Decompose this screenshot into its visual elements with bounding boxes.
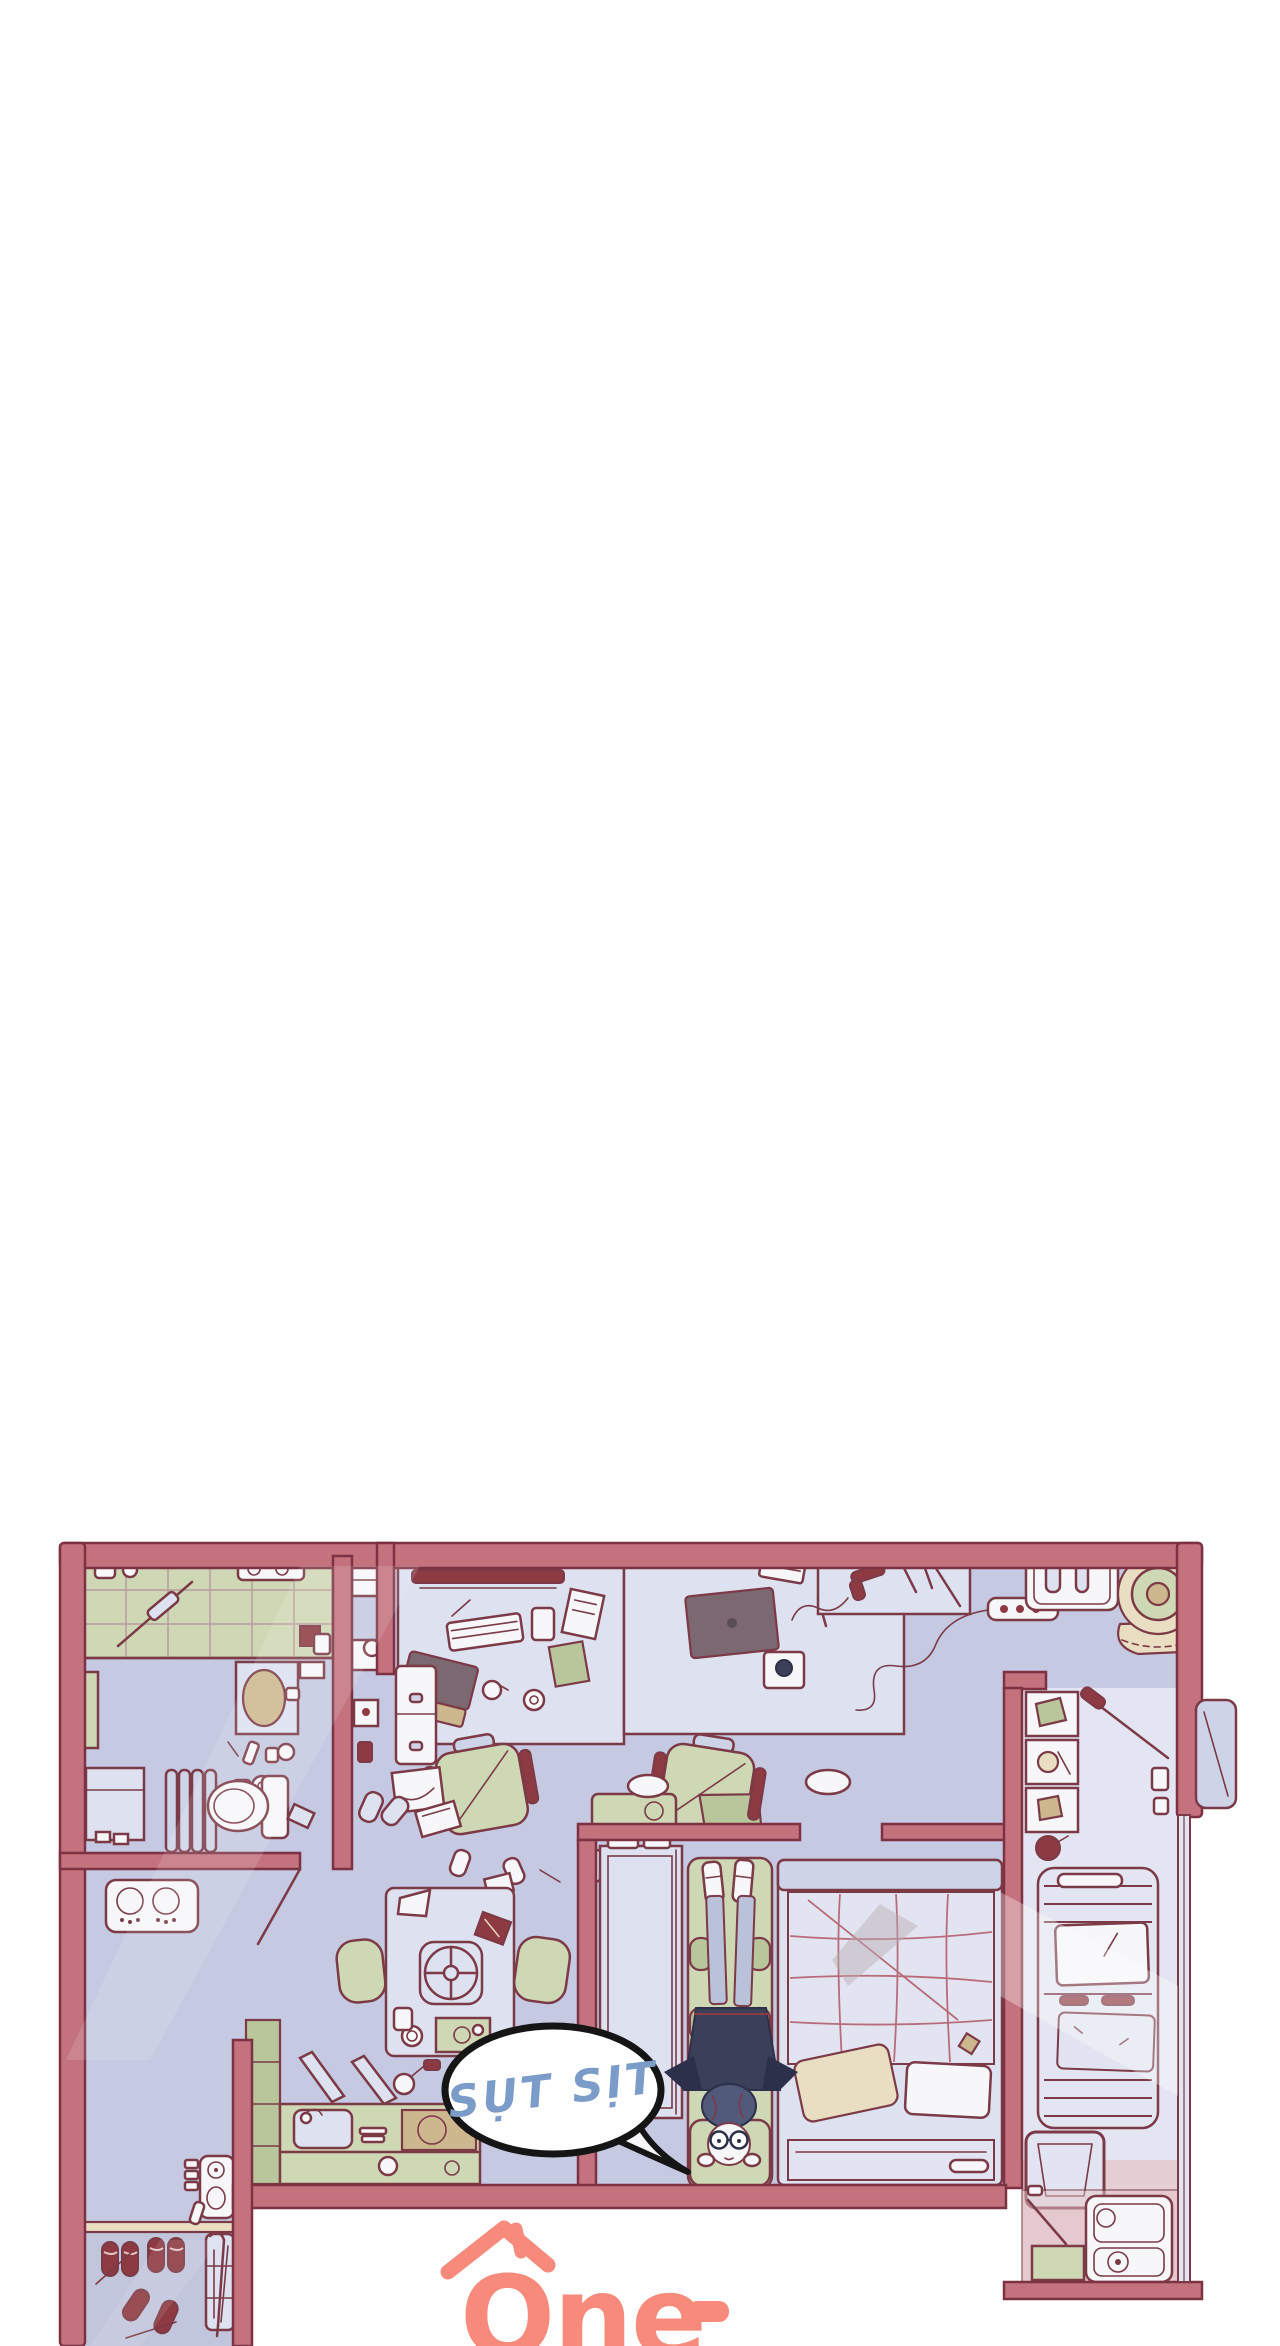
tablet-icon xyxy=(685,1588,779,1659)
floor-plan xyxy=(60,1543,1236,2346)
washing-machine-icon xyxy=(1086,2196,1172,2282)
wall-bathroom-bottom xyxy=(60,1853,300,1869)
wall-top xyxy=(60,1543,1202,1568)
wall-nook-top-left xyxy=(578,1824,800,1840)
wall-deskroom-left xyxy=(377,1543,394,1674)
wall-panel-stove xyxy=(106,1880,198,1932)
wall-balcony-stub xyxy=(1004,1672,1046,1689)
floor-mat xyxy=(1032,2246,1084,2280)
tape-roll xyxy=(524,1690,544,1710)
side-cabinet xyxy=(396,1666,436,1764)
logo-dash xyxy=(687,2301,729,2322)
pillow-2 xyxy=(905,2062,992,2118)
dining-chair-right xyxy=(512,1935,572,2006)
notebook xyxy=(549,1641,589,1686)
laundry-zone xyxy=(1022,2186,1178,2282)
towel-1 xyxy=(1055,1922,1149,1985)
wall-corridor xyxy=(233,2040,252,2346)
dining-table xyxy=(386,1888,514,2056)
cup-icon xyxy=(483,1681,501,1699)
bed xyxy=(778,1860,1002,2185)
lockbox xyxy=(764,1652,804,1688)
phone-icon xyxy=(532,1608,554,1640)
wall-bathroom-right xyxy=(333,1556,352,1869)
dining-chair-left xyxy=(335,1938,387,2004)
wall-left xyxy=(60,1543,85,2346)
bed-foot xyxy=(788,2140,994,2180)
kettle xyxy=(379,2157,397,2175)
hanger-bar xyxy=(1058,1874,1122,1887)
wall-balcony xyxy=(1004,1688,1022,2188)
shower-area xyxy=(84,1556,333,1658)
entry-appliance xyxy=(185,2156,234,2225)
publisher-logo: One xyxy=(448,2228,729,2346)
logo-text: One xyxy=(460,2253,705,2346)
window-right xyxy=(1178,1815,1190,2282)
entry-sill xyxy=(84,2222,233,2232)
webtoon-panel: SỤT SỊT One xyxy=(0,0,1280,2346)
hotpot-icon xyxy=(420,1942,482,2004)
front-door xyxy=(1196,1700,1236,1808)
papers xyxy=(562,1589,604,1639)
wall-bottom xyxy=(233,2185,1006,2208)
wall-nook-top-right xyxy=(882,1824,1006,1840)
bed-headboard xyxy=(778,1860,1002,1890)
towel-2 xyxy=(1057,2012,1155,2071)
wall-balcony-bottom xyxy=(1004,2282,1202,2299)
marker-tray xyxy=(412,1570,564,1583)
wall-switches xyxy=(1152,1768,1168,1814)
